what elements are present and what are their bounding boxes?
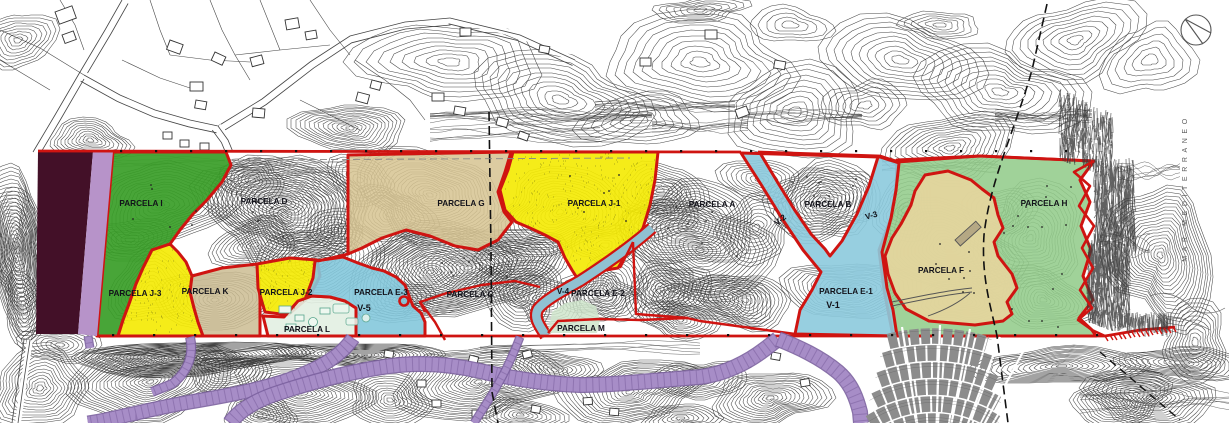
svg-text:PARCELA I: PARCELA I [119,199,162,208]
svg-text:PARCELA C: PARCELA C [447,290,494,299]
svg-text:PARCELA J-1: PARCELA J-1 [568,199,621,208]
svg-text:PARCELA B: PARCELA B [805,200,852,209]
svg-text:PARCELA D: PARCELA D [241,197,288,206]
svg-text:PARCELA J-2: PARCELA J-2 [260,288,313,297]
svg-text:PARCELA A: PARCELA A [689,200,736,209]
svg-text:V-5: V-5 [357,303,371,313]
svg-text:MAR MEDITERRANEO: MAR MEDITERRANEO [1182,114,1189,262]
svg-text:V-4: V-4 [557,287,570,296]
svg-text:PARCELA E-3: PARCELA E-3 [354,288,408,297]
svg-text:PARCELA K: PARCELA K [182,287,229,296]
svg-text:PARCELA H: PARCELA H [1021,199,1068,208]
svg-text:PARCELA E-1: PARCELA E-1 [819,287,873,296]
svg-text:PARCELA L: PARCELA L [284,325,330,334]
svg-text:V-1: V-1 [826,300,840,310]
svg-text:PARCELA F: PARCELA F [918,266,964,275]
svg-text:PARCELA G: PARCELA G [437,199,484,208]
svg-text:PARCELA E-2: PARCELA E-2 [571,289,625,298]
svg-text:PARCELA M: PARCELA M [557,324,605,333]
svg-text:PARCELA J-3: PARCELA J-3 [109,289,162,298]
